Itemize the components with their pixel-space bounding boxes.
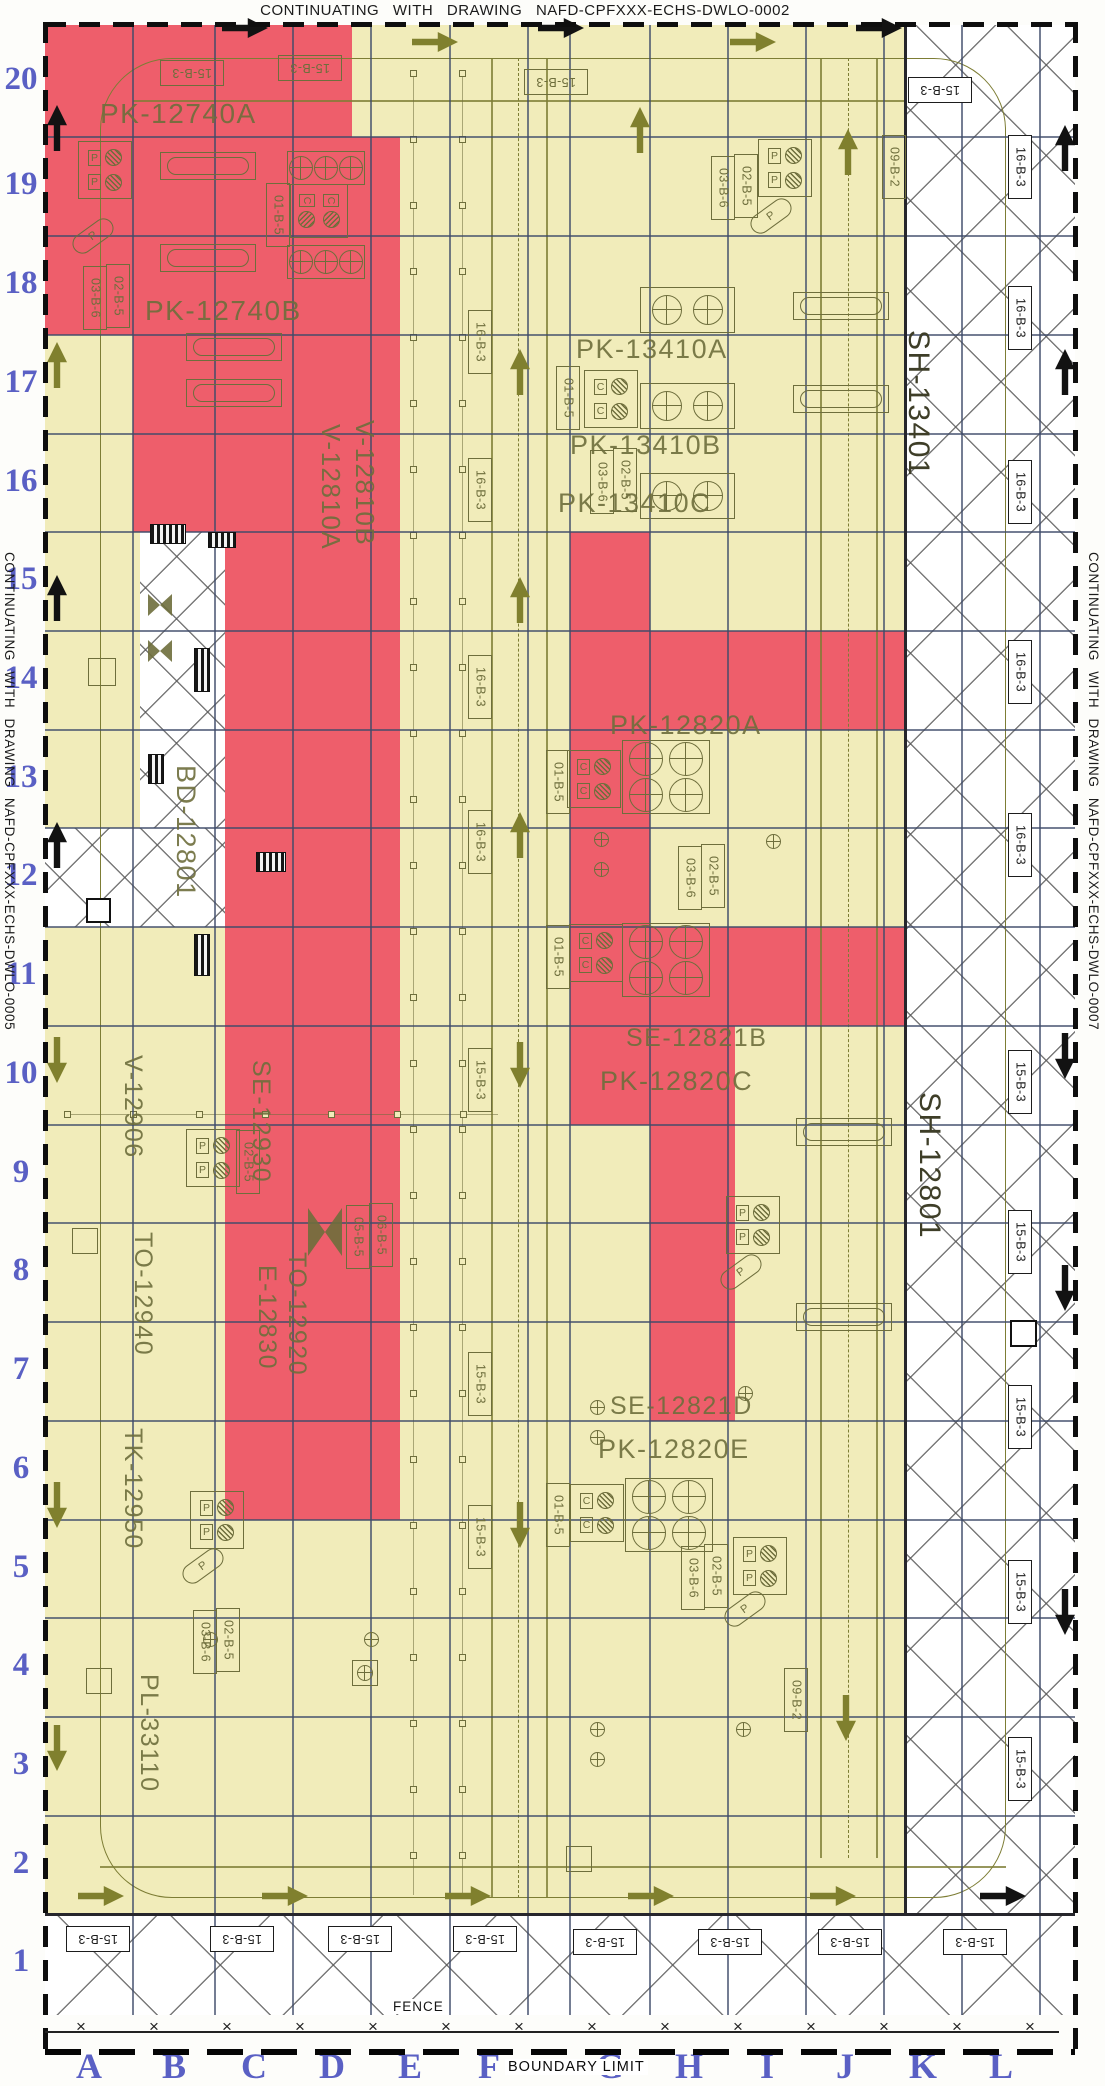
pipe-rack-support: [459, 1720, 466, 1727]
grid-vline: [370, 25, 372, 2015]
horizontal-vessel-icon: [796, 1303, 892, 1331]
equipment-label-PK-12740B: PK-12740B: [145, 297, 302, 325]
road-edge: [100, 1866, 1006, 1868]
drawing-border-left: [43, 22, 48, 2052]
tag-box-16-B-3: 16-B-3: [1008, 460, 1032, 524]
tag-box-01-B-5: 01-B-5: [546, 1483, 570, 1547]
row-label-20: 20: [0, 61, 42, 98]
pipe-rack-support: [410, 268, 417, 275]
fence-x-icon: ×: [952, 2018, 962, 2035]
pipe-rack-support: [459, 1786, 466, 1793]
tag-box-03-B-6: 03-B-6: [711, 156, 735, 220]
pipe-rack-support: [410, 466, 417, 473]
horizontal-vessel-icon: [796, 1118, 892, 1146]
pipe-rack-support: [459, 1192, 466, 1199]
equipment-cell: C: [571, 1492, 623, 1509]
fence-label: FENCE: [390, 1999, 447, 2014]
compressor-box: CC: [569, 924, 623, 982]
tag-box-15-B-3: 15-B-3: [210, 1926, 274, 1952]
equipment-label-TO-12940: TO-12940: [130, 1232, 155, 1356]
equipment-label-V-12906: V-12906: [120, 1055, 145, 1159]
tag-box-16-B-3: 16-B-3: [1008, 640, 1032, 704]
pipe-rack-support: [459, 1588, 466, 1595]
pipe-rack-support: [410, 1126, 417, 1133]
fence-x-icon: ×: [368, 2018, 378, 2035]
equipment-label-SH-12801: SH-12801: [914, 1092, 944, 1239]
pipe-rack-line: [413, 70, 414, 1895]
equipment-label-SE-12821D: SE-12821D: [610, 1394, 753, 1419]
hatched-zone: [45, 1915, 1075, 2015]
pipe-rack-support: [410, 1192, 417, 1199]
tag-box-05-B-5: 05-B-5: [346, 1205, 370, 1269]
pump-circle-icon: [629, 961, 663, 995]
pipe-rack-support: [459, 1522, 466, 1529]
instrument-mark-icon: [364, 1632, 379, 1647]
equipment-cell: C: [323, 185, 340, 237]
grid-hline: [45, 1815, 1075, 1817]
compressor-box: CC: [290, 184, 348, 238]
horizontal-vessel-icon: [793, 385, 889, 413]
pipe-rack-support: [196, 1111, 203, 1118]
horizontal-vessel-icon: [793, 292, 889, 320]
tag-box-15-B-3: 15-B-3: [1008, 1385, 1032, 1449]
drawing-border-right: [1073, 22, 1078, 2052]
tag-box-15-B-3: 15-B-3: [328, 1926, 392, 1952]
equipment-cell: P: [191, 1524, 243, 1541]
tag-box-01-B-5: 01-B-5: [546, 750, 570, 814]
pump-group: [287, 245, 365, 279]
pump-circle-icon: [669, 778, 703, 812]
vessel-capsule: [193, 384, 275, 402]
grid-vline: [449, 25, 451, 2015]
pipe-rack-support: [459, 1126, 466, 1133]
fence-x-icon: ×: [660, 2018, 670, 2035]
foundation-square: [566, 1846, 592, 1872]
tag-box-09-B-2: 09-B-2: [882, 135, 906, 199]
equipment-label-TO-12920: TO-12920: [284, 1252, 309, 1376]
pipe-rack-support: [459, 1456, 466, 1463]
equipment-cell: P: [759, 172, 811, 189]
pipe-rack-support: [410, 1852, 417, 1859]
pipe-rack-support: [459, 400, 466, 407]
vessel-capsule: [167, 157, 249, 175]
pipe-rack-support: [410, 70, 417, 77]
pump-circle-icon: [632, 1480, 666, 1514]
pipe-rack-support: [459, 532, 466, 539]
tag-box-16-B-3: 16-B-3: [468, 458, 492, 522]
horizontal-vessel-icon: [186, 379, 282, 407]
structure-square: [86, 898, 111, 923]
pump-group: [625, 1478, 713, 1552]
pump-circle-icon: [672, 1480, 706, 1514]
pump-circle-icon: [693, 295, 723, 325]
tag-box-02-B-5: 02-B-5: [704, 1544, 728, 1608]
pump-group: [640, 383, 735, 429]
pump-circle-icon: [339, 250, 363, 274]
equipment-cell: P: [734, 1570, 786, 1587]
row1-strip-border: [45, 1913, 1075, 1916]
compressor-box: CC: [567, 750, 621, 808]
vessel-capsule: [167, 249, 249, 267]
foundation-square: [86, 1668, 112, 1694]
pipe-rack-support: [410, 796, 417, 803]
road-centerline: [848, 58, 849, 1858]
equipment-cell: C: [585, 378, 637, 395]
grid-hline: [45, 1025, 1075, 1027]
fence-x-icon: ×: [514, 2018, 524, 2035]
pump-circle-icon: [652, 391, 682, 421]
vessel-capsule: [800, 297, 882, 315]
pump-house-box: PP: [186, 1129, 240, 1187]
equipment-label-PK-12820C: PK-12820C: [600, 1068, 753, 1095]
pipe-rack-support: [459, 928, 466, 935]
equipment-label-PK-13410B: PK-13410B: [570, 432, 722, 459]
equipment-cell: P: [79, 174, 131, 191]
fence-x-icon: ×: [806, 2018, 816, 2035]
pipe-rack-support: [459, 1654, 466, 1661]
pipe-rack-support: [410, 1060, 417, 1067]
tag-box-03-B-6: 03-B-6: [83, 266, 107, 330]
pump-house-box: PP: [758, 139, 812, 197]
row-label-4: 4: [0, 1647, 42, 1684]
stair-hatch-icon: [256, 852, 286, 872]
equipment-cell: P: [187, 1137, 239, 1154]
equipment-cell: C: [571, 1517, 623, 1534]
continuation-note-right: CONTINUATING WITH DRAWING NAFD-CPFXXX-EC…: [1086, 552, 1101, 1482]
pipe-rack-support: [459, 1060, 466, 1067]
tag-box-15-B-3: 15-B-3: [698, 1929, 762, 1955]
tag-box-15-B-3: 15-B-3: [468, 1352, 492, 1416]
equipment-cell: P: [727, 1229, 779, 1246]
pipe-rack-support: [459, 664, 466, 671]
grid-hline: [45, 1420, 1075, 1422]
tag-box-15-B-3: 15-B-3: [1008, 1560, 1032, 1624]
tag-box-15-B-3: 15-B-3: [468, 1505, 492, 1569]
equipment-cell: P: [187, 1162, 239, 1179]
instrument-square-icon: [352, 1660, 378, 1686]
pipe-rack-support: [328, 1111, 335, 1118]
instrument-mark-icon: [590, 1752, 605, 1767]
road-edge: [820, 58, 822, 1858]
pipe-rack-support: [410, 202, 417, 209]
pipe-rack-support: [410, 862, 417, 869]
pipe-rack-support: [459, 1852, 466, 1859]
tag-box-16-B-3: 16-B-3: [468, 655, 492, 719]
boundary-limit-label: BOUNDARY LIMIT: [505, 2059, 648, 2075]
pipe-rack-support: [64, 1111, 71, 1118]
horizontal-vessel-icon: [186, 333, 282, 361]
pipe-rack-support: [459, 796, 466, 803]
tag-box-02-B-5: 02-B-5: [701, 844, 725, 908]
pipe-rack-support: [459, 466, 466, 473]
pump-group: [287, 151, 365, 185]
pump-circle-icon: [669, 742, 703, 776]
fence-x-icon: ×: [295, 2018, 305, 2035]
pump-circle-icon: [314, 250, 338, 274]
equipment-label-SH-13401: SH-13401: [903, 330, 933, 477]
fence-x-icon: ×: [879, 2018, 889, 2035]
equipment-label-V-12810A: V-12810A: [318, 424, 344, 550]
tag-box-03-B-6: 03-B-6: [678, 846, 702, 910]
row-label-3: 3: [0, 1746, 42, 1783]
stair-hatch-icon: [208, 532, 236, 548]
equipment-cell: C: [585, 403, 637, 420]
pipe-rack-support: [410, 400, 417, 407]
tag-box-02-B-5: 02-B-5: [106, 264, 130, 328]
pump-circle-icon: [339, 156, 363, 180]
tag-box-01-B-5: 01-B-5: [266, 183, 290, 247]
instrument-mark-icon: [590, 1722, 605, 1737]
pump-group: [640, 287, 735, 333]
foundation-square: [88, 658, 116, 686]
pump-circle-icon: [669, 961, 703, 995]
zone-strip-border: [904, 25, 907, 1915]
pipe-rack-support: [410, 598, 417, 605]
drawing-border-top: [45, 22, 1075, 27]
grid-vline: [1039, 25, 1041, 2015]
equipment-label-SE-12821B: SE-12821B: [626, 1026, 767, 1051]
pump-circle-icon: [629, 925, 663, 959]
pump-circle-icon: [672, 1516, 706, 1550]
row-label-5: 5: [0, 1549, 42, 1586]
row-label-18: 18: [0, 265, 42, 302]
fence-line: [45, 2031, 1059, 2033]
pipe-rack-support: [410, 730, 417, 737]
pump-group: [622, 923, 710, 997]
grid-hline: [45, 1716, 1075, 1718]
pipe-rack-support: [459, 730, 466, 737]
pipe-rack-support: [410, 664, 417, 671]
equipment-label-E-12830: E-12830: [254, 1265, 279, 1370]
equipment-label-PK-12820E: PK-12820E: [598, 1436, 750, 1463]
pump-group: [622, 740, 710, 814]
pump-circle-icon: [629, 778, 663, 812]
equipment-label-TK-12950: TK-12950: [120, 1428, 145, 1550]
pump-circle-icon: [652, 295, 682, 325]
tag-box-15-B-3: 15-B-3: [573, 1929, 637, 1955]
pump-house-box: PP: [733, 1537, 787, 1595]
fence-x-icon: ×: [441, 2018, 451, 2035]
pump-circle-icon: [289, 250, 313, 274]
pump-house-box: PP: [78, 141, 132, 199]
continuation-note-left: CONTINUATING WITH DRAWING NAFD-CPFXXX-EC…: [2, 552, 17, 1482]
pipe-rack-support: [410, 1654, 417, 1661]
pump-circle-icon: [632, 1516, 666, 1550]
tag-box-03-B-6: 03-B-6: [681, 1546, 705, 1610]
grid-vline: [569, 25, 571, 2015]
tag-box-15-B-3: 15-B-3: [453, 1926, 517, 1952]
stair-hatch-icon: [194, 934, 210, 976]
pump-circle-icon: [289, 156, 313, 180]
horizontal-vessel-icon: [160, 152, 256, 180]
tag-box-06-B-5: 06-B-5: [369, 1203, 393, 1267]
equipment-cell: C: [570, 932, 622, 949]
grid-vline: [961, 25, 963, 2015]
equipment-cell: C: [568, 758, 620, 775]
tag-box-16-B-3: 16-B-3: [1008, 135, 1032, 199]
fence-x-icon: ×: [587, 2018, 597, 2035]
pipe-rack-support: [410, 928, 417, 935]
row-label-19: 19: [0, 166, 42, 203]
pump-circle-icon: [629, 742, 663, 776]
equipment-label-PK-13410C: PK-13410C: [558, 490, 711, 517]
stair-hatch-icon: [148, 754, 164, 784]
pipe-rack-support: [410, 1258, 417, 1265]
row-label-2: 2: [0, 1845, 42, 1882]
equipment-label-PK-13410A: PK-13410A: [576, 336, 728, 363]
fence-x-icon: ×: [222, 2018, 232, 2035]
equipment-label-V-12810B: V-12810B: [352, 420, 378, 546]
equipment-cell: C: [570, 957, 622, 974]
row-label-17: 17: [0, 364, 42, 401]
vessel-capsule: [193, 338, 275, 356]
stair-hatch-icon: [194, 648, 210, 692]
pipe-rack-support: [459, 1390, 466, 1397]
pump-house-box: PP: [726, 1196, 780, 1254]
pipe-rack-support: [459, 598, 466, 605]
tag-box-01-B-5: 01-B-5: [546, 925, 570, 989]
grid-vline: [527, 25, 529, 2015]
tag-box-16-B-3: 16-B-3: [1008, 813, 1032, 877]
grid-hline: [45, 630, 1075, 632]
tag-box-15-B-3: 15-B-3: [1008, 1050, 1032, 1114]
pipe-rack-support: [459, 268, 466, 275]
equipment-cell: P: [727, 1204, 779, 1221]
equipment-label-BD-12801: BD-12801: [172, 765, 199, 899]
pipe-rack-support: [410, 1390, 417, 1397]
fence-x-icon: ×: [1025, 2018, 1035, 2035]
grid-vline: [883, 25, 885, 2015]
equipment-cell: C: [568, 783, 620, 800]
pipe-rack-support: [410, 1324, 417, 1331]
pipe-rack-support: [459, 70, 466, 77]
equipment-cell: P: [734, 1545, 786, 1562]
vessel-capsule: [803, 1123, 885, 1141]
road-edge: [876, 58, 878, 1858]
instrument-mark-icon: [590, 1400, 605, 1415]
pump-house-box: PP: [190, 1491, 244, 1549]
compressor-box: CC: [570, 1484, 624, 1542]
pipe-rack-support: [459, 862, 466, 869]
pipe-rack-support: [410, 532, 417, 539]
pipe-rack-support: [459, 202, 466, 209]
grid-hline: [45, 1321, 1075, 1323]
pipe-rack-support: [460, 1111, 467, 1118]
tag-box-16-B-3: 16-B-3: [468, 310, 492, 374]
pipe-rack-support: [410, 994, 417, 1001]
equipment-label-PL-33110: PL-33110: [136, 1674, 161, 1793]
grid-vline: [132, 25, 134, 2015]
row-label-16: 16: [0, 463, 42, 500]
tag-box-15-B-3: 15-B-3: [908, 77, 972, 103]
fence-x-icon: ×: [76, 2018, 86, 2035]
tag-box-15-B-3: 15-B-3: [1008, 1737, 1032, 1801]
boundary-limit-line: [45, 2049, 1075, 2055]
tag-box-02-B-5: 02-B-5: [734, 154, 758, 218]
plot-plan-drawing: CONTINUATING WITH DRAWING NAFD-CPFXXX-EC…: [0, 0, 1105, 2086]
instrument-mark-icon: [594, 832, 609, 847]
equipment-label-PK-12820A: PK-12820A: [610, 712, 762, 739]
pipe-rack-line: [462, 70, 463, 1895]
grid-hline: [45, 531, 1075, 533]
pipe-rack-support: [410, 1522, 417, 1529]
tag-box-15-B-3: 15-B-3: [160, 60, 224, 86]
equipment-label-SE-12930: SE-12930: [248, 1060, 273, 1183]
pipe-rack-support: [410, 1588, 417, 1595]
pump-circle-icon: [669, 925, 703, 959]
fence-x-icon: ×: [149, 2018, 159, 2035]
tag-box-16-B-3: 16-B-3: [1008, 286, 1032, 350]
tag-box-16-B-3: 16-B-3: [468, 810, 492, 874]
equipment-cell: P: [191, 1499, 243, 1516]
tag-box-09-B-2: 09-B-2: [784, 1668, 808, 1732]
fence-x-icon: ×: [733, 2018, 743, 2035]
compressor-box: CC: [584, 370, 638, 428]
equipment-cell: C: [298, 185, 315, 237]
pipe-rack-support: [459, 994, 466, 1001]
tag-box-15-B-3: 15-B-3: [943, 1929, 1007, 1955]
instrument-mark-icon: [766, 834, 781, 849]
row-label-1: 1: [0, 1943, 42, 1980]
tag-box-01-B-5: 01-B-5: [556, 366, 580, 430]
stair-hatch-icon: [150, 524, 186, 544]
tag-box-15-B-3: 15-B-3: [468, 1048, 492, 1112]
instrument-mark-icon: [736, 1722, 751, 1737]
tag-box-02-B-5: 02-B-5: [216, 1608, 240, 1672]
pump-circle-icon: [693, 391, 723, 421]
grid-hline: [45, 136, 1075, 138]
pump-circle-icon: [314, 156, 338, 180]
tag-box-15-B-3: 15-B-3: [818, 1929, 882, 1955]
foundation-square: [72, 1228, 98, 1254]
pipe-rack-support: [410, 1720, 417, 1727]
equipment-cell: P: [759, 147, 811, 164]
pipe-rack-support: [394, 1111, 401, 1118]
instrument-circle: [357, 1665, 373, 1681]
equipment-cell: P: [79, 149, 131, 166]
horizontal-vessel-icon: [160, 244, 256, 272]
continuation-note-top: CONTINUATING WITH DRAWING NAFD-CPFXXX-EC…: [45, 2, 1005, 19]
tag-box-15-B-3: 15-B-3: [278, 55, 342, 81]
tag-box-15-B-3: 15-B-3: [66, 1926, 130, 1952]
pipe-rack-support: [459, 1258, 466, 1265]
grid-hline: [45, 235, 1075, 237]
pipe-rack-support: [410, 1456, 417, 1463]
vessel-capsule: [800, 390, 882, 408]
instrument-mark-icon: [594, 862, 609, 877]
structure-square: [1010, 1320, 1037, 1347]
equipment-label-PK-12740A: PK-12740A: [100, 100, 257, 128]
tag-box-15-B-3: 15-B-3: [524, 69, 588, 95]
vessel-capsule: [803, 1308, 885, 1326]
pipe-rack-support: [410, 1786, 417, 1793]
tag-box-15-B-3: 15-B-3: [1008, 1210, 1032, 1274]
pipe-rack-support: [459, 1324, 466, 1331]
grid-hline: [45, 729, 1075, 731]
tag-box-03-B-6: 03-B-6: [193, 1610, 217, 1674]
